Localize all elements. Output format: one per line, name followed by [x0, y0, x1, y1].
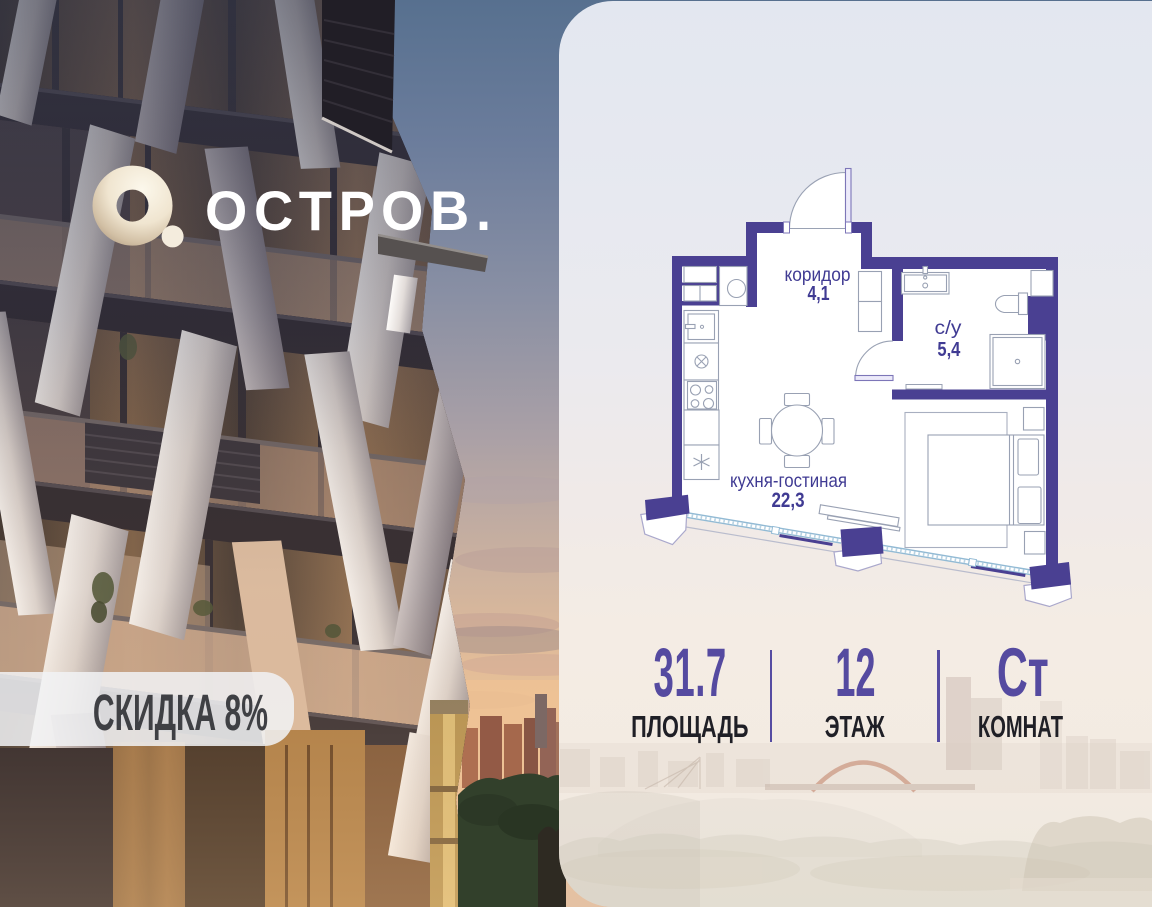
svg-text:с/у: с/у: [935, 317, 962, 339]
svg-text:4,1: 4,1: [808, 283, 830, 305]
svg-text:5,4: 5,4: [937, 339, 961, 361]
svg-text:22,3: 22,3: [772, 489, 805, 512]
